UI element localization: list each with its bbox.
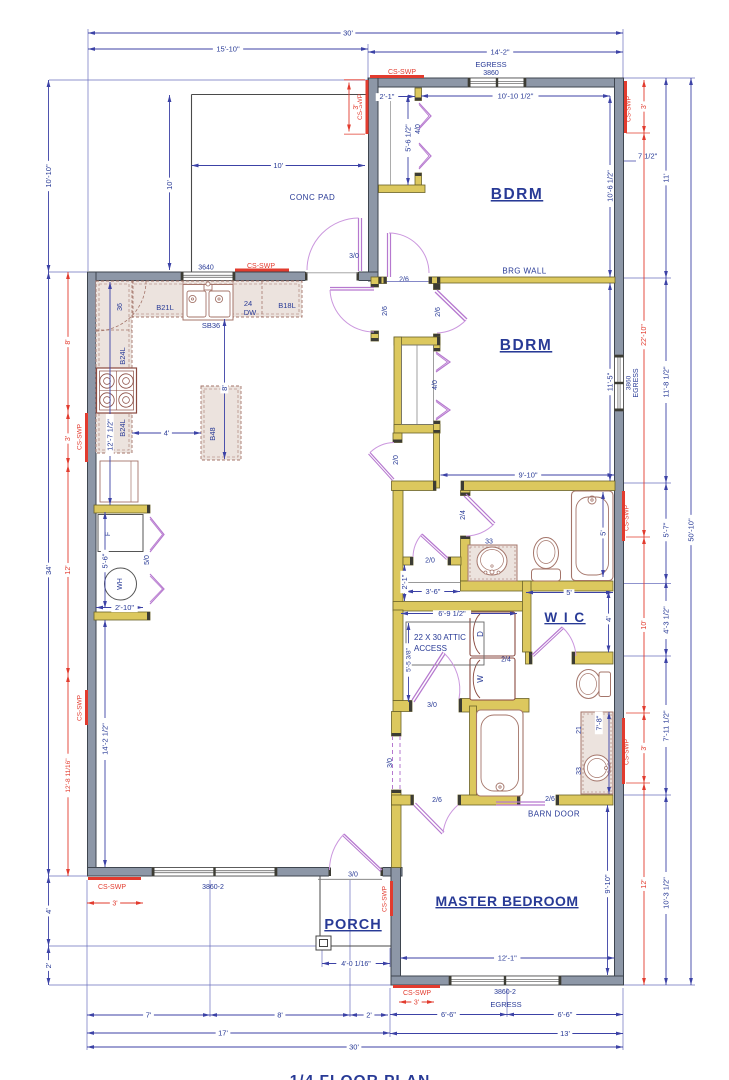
svg-text:7'-8": 7'-8" (594, 715, 603, 730)
svg-text:15'-10": 15'-10" (216, 45, 240, 54)
svg-text:3/0: 3/0 (348, 872, 358, 879)
svg-text:30': 30' (343, 29, 353, 38)
svg-text:CS-SWP: CS-SWP (77, 424, 84, 450)
svg-text:1/4 FLOOR PLAN: 1/4 FLOOR PLAN (290, 1073, 431, 1080)
svg-text:10': 10' (165, 180, 174, 190)
svg-text:B24L: B24L (118, 347, 127, 365)
svg-text:WH: WH (117, 578, 124, 590)
svg-text:2/6: 2/6 (382, 306, 389, 316)
svg-text:12'-1": 12'-1" (498, 954, 517, 963)
svg-text:EGRESS: EGRESS (475, 60, 506, 69)
svg-text:6'-6": 6'-6" (558, 1010, 573, 1019)
svg-text:3': 3' (112, 901, 117, 908)
svg-text:ACCESS: ACCESS (414, 644, 447, 653)
svg-text:CS-SWP: CS-SWP (388, 69, 416, 76)
svg-text:4': 4' (164, 429, 170, 438)
svg-text:4': 4' (44, 908, 53, 914)
svg-text:6'-9 1/2": 6'-9 1/2" (438, 609, 466, 618)
svg-text:3': 3' (414, 1000, 419, 1007)
svg-text:2': 2' (366, 1011, 372, 1020)
svg-text:5'-7": 5'-7" (661, 522, 670, 537)
svg-text:CS-SWP: CS-SWP (77, 695, 84, 721)
svg-text:5/0: 5/0 (144, 555, 151, 565)
svg-text:8': 8' (220, 385, 229, 391)
svg-text:4': 4' (604, 616, 613, 622)
svg-text:5': 5' (598, 530, 607, 536)
svg-text:36: 36 (117, 303, 124, 311)
svg-text:2/6: 2/6 (432, 797, 442, 804)
svg-text:4/0: 4/0 (432, 380, 439, 390)
svg-text:3/0: 3/0 (427, 702, 437, 709)
svg-text:5'-6": 5'-6" (100, 553, 109, 568)
svg-text:2/0: 2/0 (425, 558, 435, 565)
svg-text:34': 34' (44, 565, 53, 575)
svg-text:10'-3 1/2": 10'-3 1/2" (661, 877, 670, 909)
svg-text:10': 10' (273, 161, 283, 170)
svg-text:PORCH: PORCH (324, 917, 381, 933)
svg-text:3/0: 3/0 (349, 253, 359, 260)
svg-text:3': 3' (65, 436, 72, 441)
svg-text:CS-SWP: CS-SWP (382, 886, 389, 912)
svg-text:SB36: SB36 (202, 321, 220, 330)
svg-text:B48: B48 (208, 427, 217, 440)
svg-text:W I C: W I C (544, 610, 585, 625)
svg-text:2'-1": 2'-1" (400, 574, 409, 589)
svg-text:3860: 3860 (483, 70, 499, 77)
svg-text:2/4: 2/4 (460, 510, 467, 520)
svg-text:17': 17' (218, 1029, 228, 1038)
svg-text:CS-SWP: CS-SWP (247, 263, 275, 270)
svg-text:3860-2: 3860-2 (494, 989, 516, 996)
svg-text:2/4: 2/4 (501, 657, 511, 664)
svg-text:3': 3' (641, 745, 648, 750)
svg-text:50'-10": 50'-10" (686, 518, 695, 542)
svg-text:10'-6 1/2": 10'-6 1/2" (605, 170, 614, 202)
svg-text:10'-10": 10'-10" (44, 164, 53, 188)
svg-text:EGRESS: EGRESS (490, 1000, 521, 1009)
svg-text:3'-6": 3'-6" (426, 587, 441, 596)
svg-text:4'-0 1/16": 4'-0 1/16" (341, 961, 371, 968)
svg-text:2'-10": 2'-10" (115, 603, 134, 612)
svg-text:11': 11' (661, 173, 670, 183)
svg-text:24: 24 (244, 299, 252, 308)
svg-text:2/6: 2/6 (435, 307, 442, 317)
svg-text:8': 8' (65, 339, 72, 344)
svg-text:W: W (476, 675, 485, 683)
svg-text:BRG WALL: BRG WALL (502, 267, 546, 276)
svg-text:EGRESS: EGRESS (633, 368, 640, 398)
svg-text:DW: DW (244, 308, 257, 317)
svg-text:2/0: 2/0 (393, 455, 400, 465)
svg-text:10'-10 1/2": 10'-10 1/2" (498, 92, 534, 101)
svg-text:11'-8 1/2": 11'-8 1/2" (661, 366, 670, 397)
svg-text:B18L: B18L (278, 301, 296, 310)
svg-text:13': 13' (560, 1029, 570, 1038)
svg-text:14'-2 1/2": 14'-2 1/2" (100, 723, 109, 755)
svg-text:33: 33 (485, 539, 493, 546)
svg-text:3640: 3640 (198, 265, 214, 272)
svg-text:7': 7' (146, 1011, 152, 1020)
svg-text:10': 10' (641, 620, 648, 629)
svg-text:7'-11 1/2": 7'-11 1/2" (661, 710, 670, 741)
svg-text:6'-6": 6'-6" (441, 1010, 456, 1019)
svg-text:22'-10": 22'-10" (641, 324, 648, 346)
svg-text:CS-SWP: CS-SWP (624, 505, 631, 531)
svg-text:CS-SWP: CS-SWP (403, 990, 431, 997)
svg-text:7 1/2": 7 1/2" (638, 152, 658, 161)
svg-text:11'-5": 11'-5" (605, 372, 614, 391)
svg-text:12'-7 1/2": 12'-7 1/2" (105, 419, 114, 451)
svg-text:5': 5' (566, 588, 572, 597)
svg-text:3': 3' (353, 104, 360, 109)
svg-text:B21L: B21L (156, 303, 174, 312)
svg-text:CS-SWP: CS-SWP (98, 884, 126, 891)
svg-text:9'-10": 9'-10" (518, 471, 537, 480)
svg-text:B24L: B24L (118, 419, 127, 437)
svg-text:CS-SWP: CS-SWP (624, 739, 631, 765)
svg-text:2/6: 2/6 (399, 277, 409, 284)
svg-text:3860: 3860 (626, 375, 633, 390)
svg-text:14'-2": 14'-2" (490, 48, 509, 57)
svg-text:12'-8 11/16": 12'-8 11/16" (65, 758, 72, 793)
svg-text:2'-1": 2'-1" (380, 92, 395, 101)
svg-text:BDRM: BDRM (491, 186, 544, 203)
svg-text:BARN DOOR: BARN DOOR (528, 810, 580, 819)
svg-text:22 X 30 ATTIC: 22 X 30 ATTIC (414, 633, 466, 642)
svg-text:21: 21 (576, 726, 583, 734)
svg-text:BDRM: BDRM (500, 337, 553, 354)
svg-text:12': 12' (65, 565, 72, 574)
svg-text:33: 33 (576, 767, 583, 775)
svg-text:F: F (105, 532, 112, 536)
svg-text:30': 30' (349, 1043, 359, 1052)
svg-text:12': 12' (641, 879, 648, 888)
svg-text:8': 8' (277, 1011, 283, 1020)
svg-text:4'-3 1/2": 4'-3 1/2" (661, 606, 670, 634)
svg-text:3/0: 3/0 (387, 758, 394, 768)
svg-text:CONC PAD: CONC PAD (290, 193, 336, 202)
svg-text:CS-SWP: CS-SWP (626, 96, 633, 122)
svg-text:4/0: 4/0 (415, 124, 422, 134)
svg-text:2': 2' (44, 962, 53, 968)
svg-text:5'-6 1/2": 5'-6 1/2" (403, 124, 412, 152)
svg-text:MASTER BEDROOM: MASTER BEDROOM (435, 893, 578, 909)
svg-text:3860-2: 3860-2 (202, 884, 224, 891)
svg-text:2/6: 2/6 (545, 796, 555, 803)
svg-text:9'-10": 9'-10" (603, 874, 612, 893)
svg-text:3': 3' (641, 104, 648, 109)
svg-text:5'-5 3/8": 5'-5 3/8" (405, 647, 412, 671)
